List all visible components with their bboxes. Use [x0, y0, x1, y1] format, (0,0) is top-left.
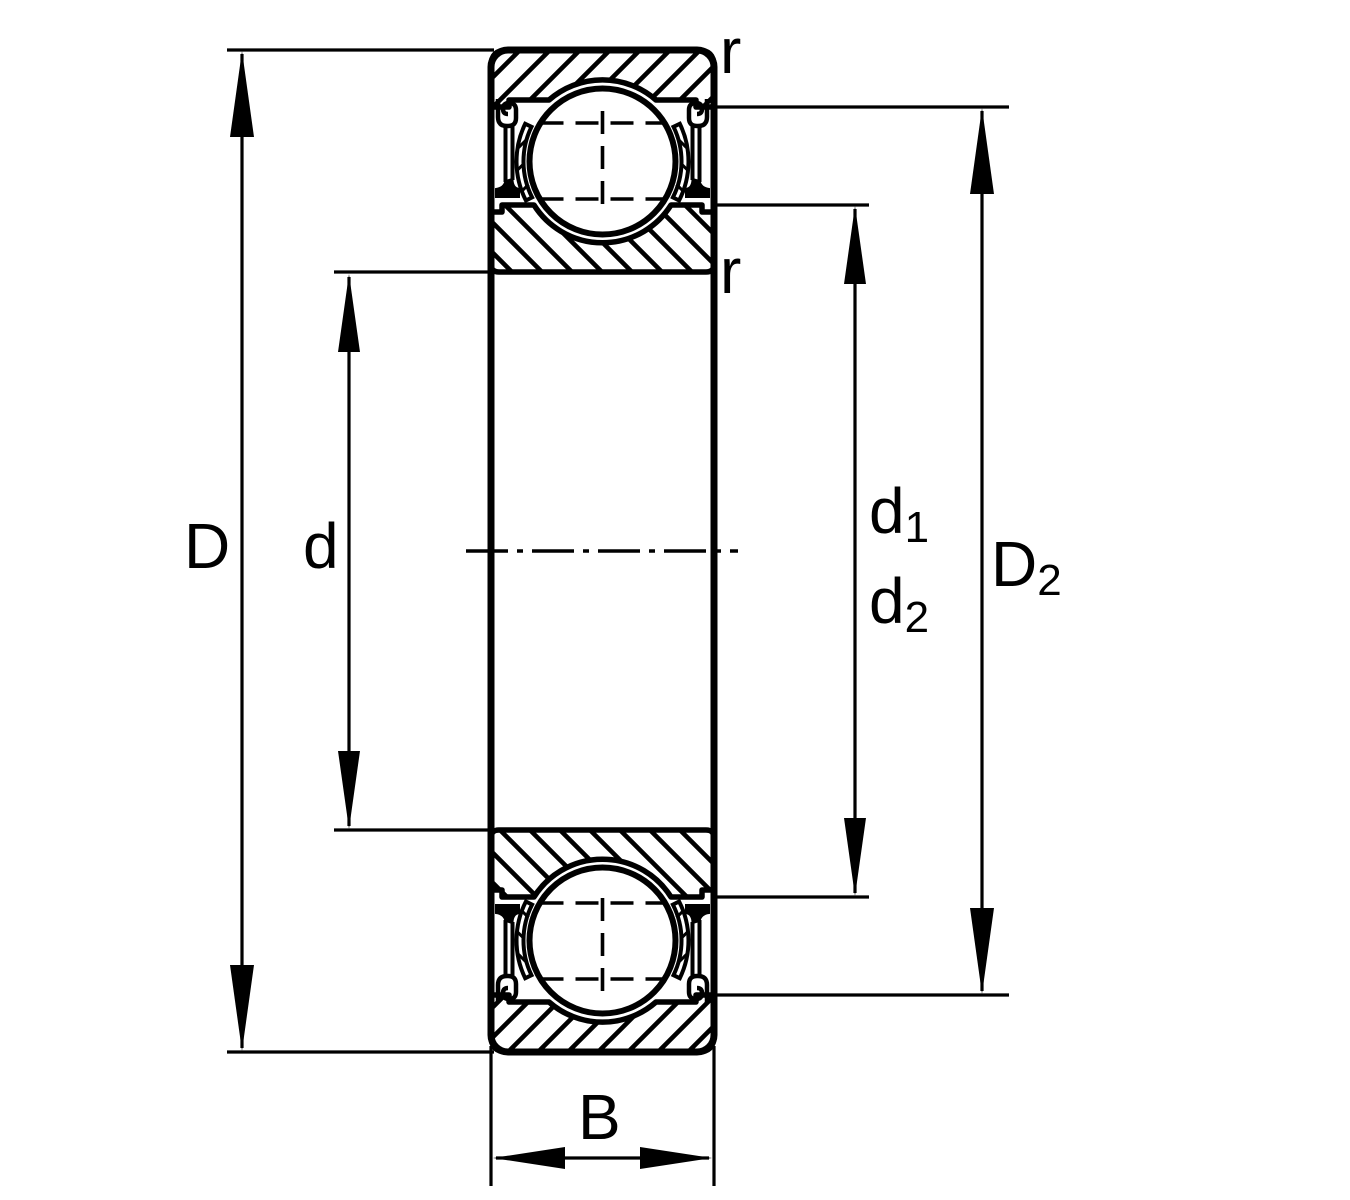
label-d1: d1 [869, 479, 929, 550]
label-d2: d2 [869, 569, 929, 640]
ball-bottom [530, 868, 676, 1014]
label-width-B: B [578, 1085, 621, 1149]
shield-bottom-left [496, 902, 532, 1004]
label-bore-diameter-d: d [303, 514, 339, 578]
label-D2: D2 [991, 532, 1062, 603]
label-d2-base: d [869, 565, 905, 637]
shield-top-right [673, 99, 709, 201]
bearing-drawing-canvas [0, 0, 1350, 1200]
dimension-D2 [714, 107, 1009, 995]
label-d2-subscript: 2 [905, 593, 929, 642]
label-outer-diameter-D: D [184, 514, 230, 578]
dimension-D [227, 50, 494, 1052]
label-chamfer-r-outer: r [720, 19, 741, 83]
shield-top-left [496, 99, 532, 201]
ball-top [530, 89, 676, 235]
label-D2-subscript: 2 [1037, 556, 1061, 605]
shield-bottom-right [673, 902, 709, 1004]
label-d1-subscript: 1 [905, 503, 929, 552]
label-chamfer-r-inner: r [720, 239, 741, 303]
label-D2-base: D [991, 528, 1037, 600]
bearing-dimension-diagram: D d d1 d2 D2 B r r [0, 0, 1350, 1200]
label-d1-base: d [869, 475, 905, 547]
